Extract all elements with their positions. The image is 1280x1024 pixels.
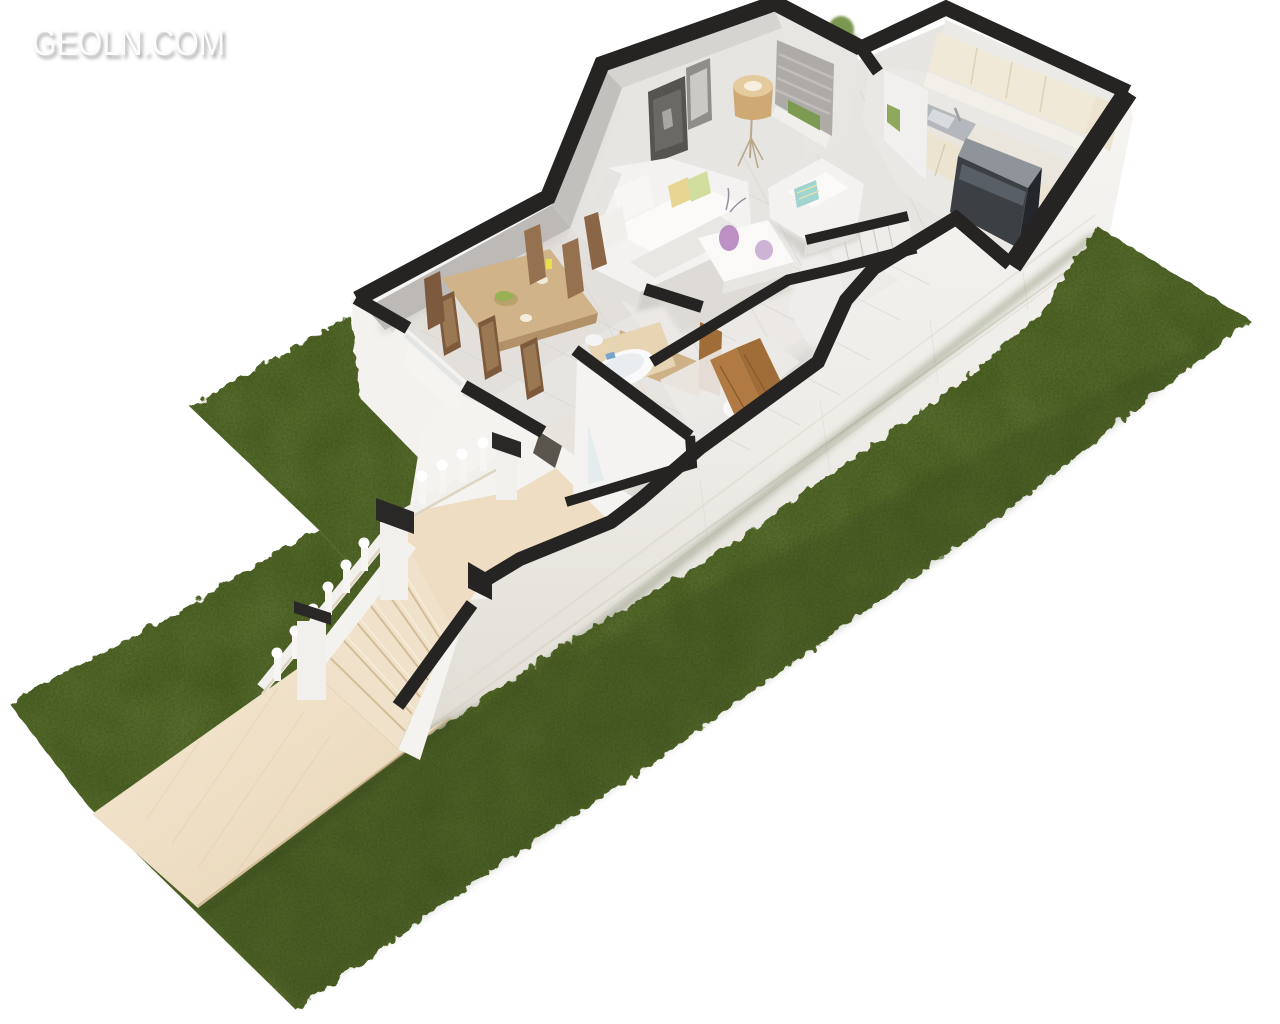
svg-text:GEOLN.COM: GEOLN.COM [32,22,225,63]
